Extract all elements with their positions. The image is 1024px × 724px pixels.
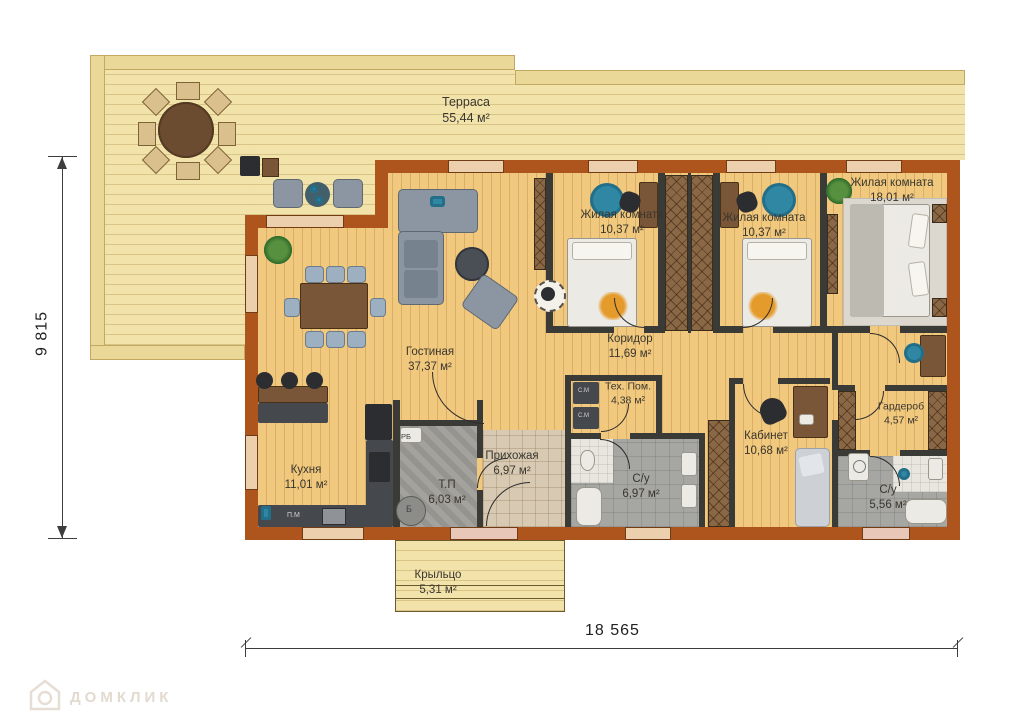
terrace-round-table xyxy=(158,102,214,158)
room-label-bedroom2: Жилая комната10,37 м² xyxy=(722,211,805,241)
dim-tick xyxy=(48,538,77,539)
window xyxy=(266,215,344,228)
bar-counter xyxy=(258,386,328,403)
room-label-techroom: Тех. Пом.4,38 м² xyxy=(605,380,651,407)
room-label-tp: Т.П6,03 м² xyxy=(428,478,465,508)
desk xyxy=(920,335,946,377)
terrace-chair xyxy=(218,122,236,146)
room-label-bedroom1: Жилая комната10,37 м² xyxy=(580,208,663,238)
tv-unit xyxy=(534,178,546,270)
room-label-wardrobe: Гардероб4,57 м² xyxy=(878,400,924,427)
annotation-b: Б xyxy=(406,504,412,514)
sofa-cushion xyxy=(404,270,438,298)
bathtub xyxy=(576,487,602,526)
window xyxy=(625,527,671,540)
cup xyxy=(315,196,323,204)
room-label-hallway: Прихожая6,97 м² xyxy=(485,449,538,479)
dining-chair xyxy=(305,266,324,283)
dim-arrow-up xyxy=(57,157,67,169)
pillow xyxy=(572,242,632,260)
dining-chair xyxy=(370,298,386,317)
lounge-chair xyxy=(273,179,303,208)
annotation-rb: РБ xyxy=(401,432,411,441)
plant xyxy=(264,236,292,264)
terrace-edge xyxy=(90,345,245,360)
window xyxy=(862,527,910,540)
washbasin xyxy=(681,452,697,476)
wall xyxy=(827,326,870,333)
wall xyxy=(546,326,614,333)
porch-step-line xyxy=(395,598,565,599)
window xyxy=(588,160,638,173)
dim-arrow-down xyxy=(57,526,67,538)
room-label-porch: Крыльцо5,31 м² xyxy=(415,568,462,598)
washbasin xyxy=(681,484,697,508)
room-label-terrace: Терраса55,44 м² xyxy=(442,94,490,127)
wall xyxy=(658,173,665,333)
terrace-edge xyxy=(90,55,515,70)
window xyxy=(846,160,902,173)
blanket xyxy=(850,204,884,317)
bathtub xyxy=(905,499,947,524)
wardrobe-unit xyxy=(665,175,688,331)
wardrobe-unit xyxy=(691,175,713,331)
watermark: ДОМКЛИК xyxy=(28,678,172,717)
window xyxy=(302,527,364,540)
wall xyxy=(773,326,827,333)
dim-line-horizontal xyxy=(245,648,958,649)
wall xyxy=(699,433,705,527)
grill-side-table xyxy=(262,158,279,177)
window xyxy=(726,160,776,173)
dim-width-label: 18 565 xyxy=(585,622,640,640)
lounge-chair xyxy=(333,179,363,208)
wardrobe-unit xyxy=(928,391,947,450)
dim-line-vertical xyxy=(62,157,63,538)
wall xyxy=(729,378,735,527)
wardrobe-unit xyxy=(708,420,730,527)
nightstand xyxy=(932,298,947,317)
wardrobe-unit xyxy=(838,391,856,450)
terrace-edge xyxy=(90,55,105,360)
house-logo-icon xyxy=(28,678,62,717)
dim-height-label: 9 815 xyxy=(34,311,52,356)
room-label-corridor: Коридор11,69 м² xyxy=(607,332,652,362)
window xyxy=(245,255,258,313)
annotation-pm: П.М xyxy=(287,512,300,519)
wall xyxy=(713,173,720,333)
floor-plan: Терраса55,44 м² Гостиная37,37 м² Кухня11… xyxy=(0,0,1024,724)
room-label-office: Кабинет10,68 м² xyxy=(744,429,788,459)
stove-core xyxy=(541,287,555,301)
entry-door xyxy=(450,527,518,540)
desk xyxy=(793,386,828,438)
wall xyxy=(900,326,947,333)
pillow xyxy=(747,242,807,260)
dining-chair xyxy=(347,331,366,348)
wall xyxy=(832,333,838,390)
dining-chair xyxy=(284,298,300,317)
sink xyxy=(322,508,346,525)
room-label-living: Гостиная37,37 м² xyxy=(406,345,454,375)
bar-stool xyxy=(256,372,273,389)
wall xyxy=(729,378,743,384)
room-label-bedroom3: Жилая комната18,01 м² xyxy=(850,176,933,206)
annotation-sm1: С.М xyxy=(578,388,589,394)
washbasin xyxy=(928,458,943,480)
washing-machine-door xyxy=(853,460,866,473)
wall xyxy=(713,326,743,333)
window xyxy=(448,160,504,173)
terrace-edge xyxy=(515,70,965,85)
sofa-cushion xyxy=(404,240,438,268)
bar-base xyxy=(258,403,328,423)
nightstand xyxy=(932,204,947,223)
annotation-sm2: С.М xyxy=(578,413,589,419)
desk-chair xyxy=(904,343,924,363)
cup xyxy=(310,185,318,193)
room-label-bathroom1: С/у6,97 м² xyxy=(622,472,659,502)
kitchen-accent xyxy=(261,506,271,520)
room-label-bathroom2: С/у5,56 м² xyxy=(869,483,906,513)
wall xyxy=(778,378,830,384)
wall xyxy=(565,375,571,433)
fridge xyxy=(365,404,392,440)
grill xyxy=(240,156,260,176)
wardrobe-unit xyxy=(827,214,838,294)
laptop xyxy=(799,414,814,425)
wall xyxy=(656,375,662,433)
dim-slash xyxy=(953,637,964,648)
toilet xyxy=(580,450,595,471)
bar-stool xyxy=(306,372,323,389)
dining-chair xyxy=(305,331,324,348)
room-label-kitchen: Кухня11,01 м² xyxy=(285,463,328,493)
terrace-chair xyxy=(138,122,156,146)
window xyxy=(245,435,258,490)
terrace-chair xyxy=(176,82,200,100)
terrace-chair xyxy=(176,162,200,180)
dining-chair xyxy=(347,266,366,283)
stool xyxy=(898,468,910,480)
cooktop xyxy=(369,452,390,482)
dining-table xyxy=(300,283,368,329)
dining-chair xyxy=(326,331,345,348)
bar-stool xyxy=(281,372,298,389)
dim-slash xyxy=(241,637,252,648)
dining-chair xyxy=(326,266,345,283)
pillow xyxy=(430,196,445,207)
watermark-text: ДОМКЛИК xyxy=(70,689,172,706)
